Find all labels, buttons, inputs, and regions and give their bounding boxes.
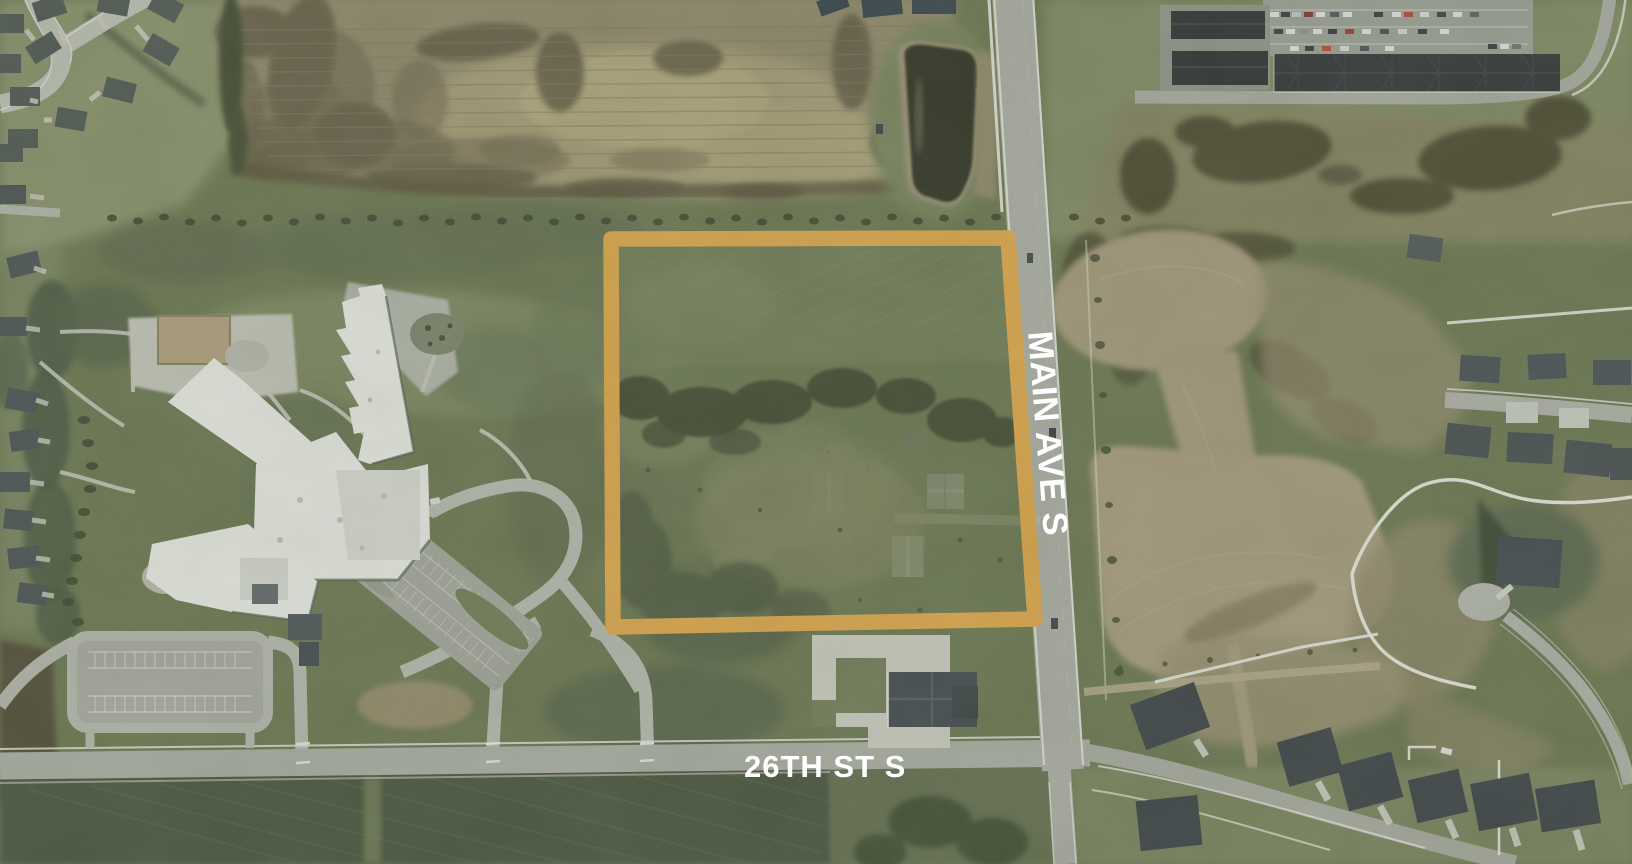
svg-text:26TH ST S: 26TH ST S (744, 749, 906, 784)
